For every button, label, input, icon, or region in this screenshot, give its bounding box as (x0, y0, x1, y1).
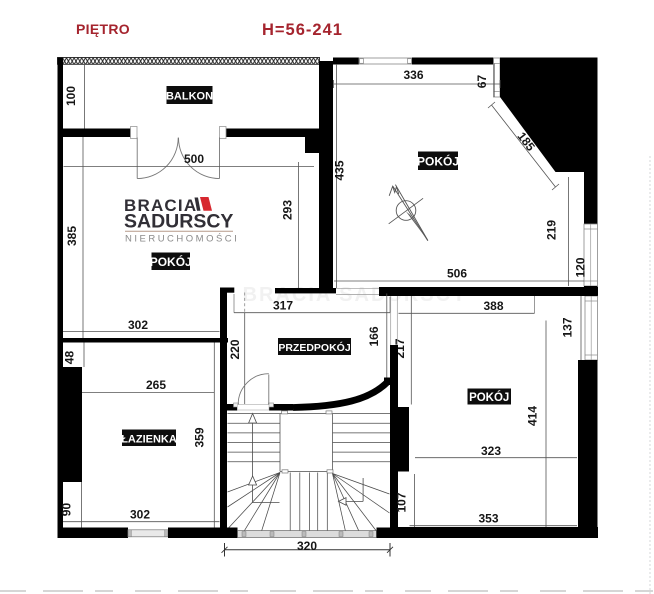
svg-text:BALKON: BALKON (166, 91, 213, 103)
svg-text:100: 100 (64, 86, 78, 106)
svg-text:302: 302 (128, 318, 148, 332)
svg-text:320: 320 (297, 539, 317, 553)
svg-text:137: 137 (561, 317, 575, 337)
svg-text:POKÓJ: POKÓJ (150, 254, 192, 269)
svg-text:265: 265 (146, 378, 166, 392)
svg-text:PRZEDPOKÓJ: PRZEDPOKÓJ (278, 341, 351, 354)
svg-text:359: 359 (193, 427, 207, 447)
svg-text:SADURSCY: SADURSCY (124, 211, 233, 233)
svg-text:506: 506 (447, 267, 467, 281)
svg-text:414: 414 (526, 406, 540, 426)
svg-text:353: 353 (478, 512, 498, 526)
svg-text:388: 388 (483, 299, 503, 313)
svg-text:107: 107 (395, 492, 409, 512)
svg-text:PIĘTRO: PIĘTRO (76, 21, 130, 37)
svg-text:48: 48 (63, 351, 77, 365)
svg-text:323: 323 (481, 444, 501, 458)
svg-text:POKÓJ: POKÓJ (469, 391, 509, 404)
svg-text:NIERUCHOMOŚCI: NIERUCHOMOŚCI (125, 233, 239, 245)
svg-text:POKÓJ: POKÓJ (417, 154, 459, 169)
svg-text:67: 67 (475, 75, 489, 89)
svg-text:336: 336 (403, 68, 423, 82)
svg-text:120: 120 (574, 257, 588, 277)
svg-text:H=56-241: H=56-241 (262, 21, 343, 39)
svg-text:166: 166 (367, 326, 381, 346)
svg-text:293: 293 (281, 200, 295, 220)
svg-text:220: 220 (228, 339, 242, 359)
svg-text:ŁAZIENKA: ŁAZIENKA (121, 434, 177, 446)
svg-text:219: 219 (545, 220, 559, 240)
svg-text:317: 317 (273, 299, 293, 313)
svg-text:385: 385 (65, 226, 79, 246)
svg-text:302: 302 (130, 508, 150, 522)
svg-text:90: 90 (60, 503, 74, 517)
svg-text:500: 500 (184, 152, 204, 166)
svg-text:435: 435 (333, 160, 347, 180)
